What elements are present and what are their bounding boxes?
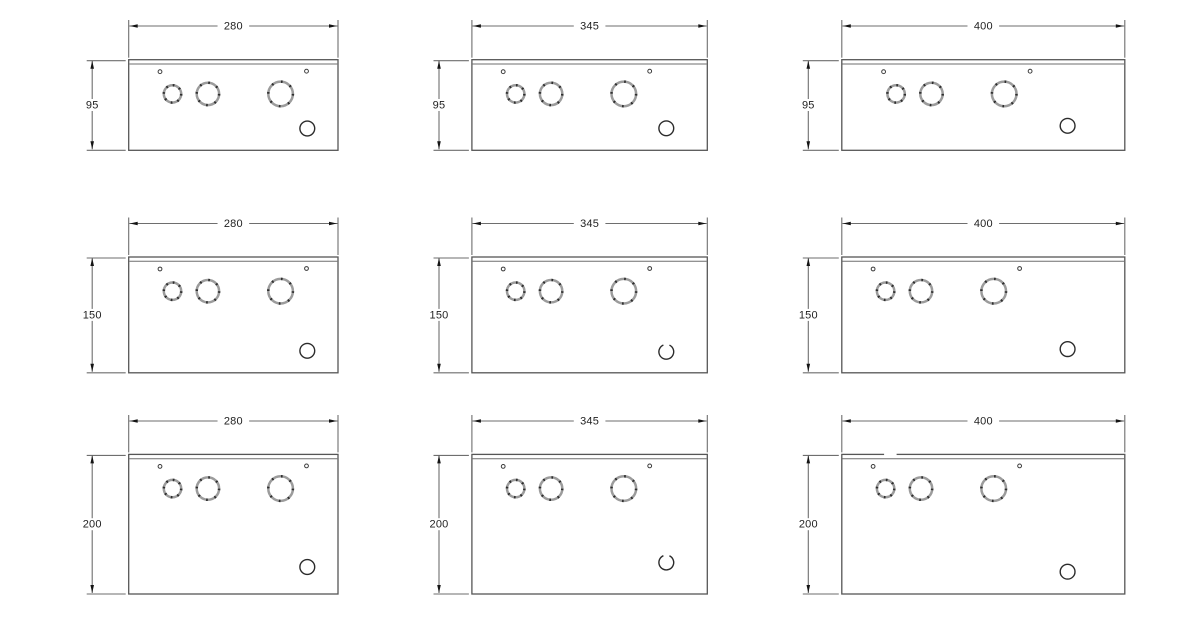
dimension-arrow bbox=[437, 258, 441, 266]
panel-400x150: 400150 bbox=[797, 218, 1125, 373]
width-dimension-label: 280 bbox=[224, 21, 243, 33]
width-dimension-label: 400 bbox=[974, 218, 993, 230]
height-dimension-label: 150 bbox=[83, 309, 102, 321]
height-dimension: 95 bbox=[800, 61, 839, 151]
height-dimension-label: 150 bbox=[430, 309, 449, 321]
width-dimension: 280 bbox=[129, 20, 338, 58]
dimension-arrow bbox=[437, 585, 441, 593]
width-dimension-label: 280 bbox=[224, 218, 243, 230]
width-dimension-label: 345 bbox=[580, 218, 599, 230]
width-dimension: 400 bbox=[842, 415, 1125, 452]
width-dimension-label: 345 bbox=[580, 21, 599, 33]
dimension-arrow bbox=[437, 364, 441, 372]
panel-280x150: 280150 bbox=[81, 218, 338, 373]
height-dimension-label: 95 bbox=[802, 100, 815, 112]
dimension-arrow bbox=[698, 222, 706, 226]
dimension-arrow bbox=[843, 419, 851, 423]
dimension-arrow bbox=[698, 419, 706, 423]
dimension-arrow bbox=[130, 24, 138, 28]
panel-345x200: 345200 bbox=[428, 415, 708, 594]
dimension-arrow bbox=[843, 222, 851, 226]
dimension-arrow bbox=[90, 364, 94, 372]
width-dimension: 345 bbox=[472, 20, 707, 58]
dimension-arrow bbox=[473, 24, 481, 28]
dimension-arrow bbox=[90, 61, 94, 69]
dimension-arrow bbox=[90, 258, 94, 266]
height-dimension: 150 bbox=[797, 258, 839, 373]
dimension-arrow bbox=[473, 419, 481, 423]
dimension-arrow bbox=[807, 364, 811, 372]
dimension-arrow bbox=[90, 141, 94, 149]
height-dimension: 200 bbox=[81, 455, 126, 594]
dimension-arrow bbox=[130, 419, 138, 423]
height-dimension-label: 200 bbox=[799, 519, 818, 531]
width-dimension-label: 280 bbox=[224, 416, 243, 428]
dimension-arrow bbox=[329, 419, 337, 423]
dimension-arrow bbox=[807, 258, 811, 266]
enclosure-body-outline bbox=[472, 454, 707, 594]
enclosure-body-outline bbox=[472, 60, 707, 151]
dimension-arrow bbox=[1116, 222, 1124, 226]
height-dimension: 150 bbox=[81, 258, 126, 373]
width-dimension-label: 345 bbox=[580, 416, 599, 428]
dimension-arrow bbox=[1116, 419, 1124, 423]
width-dimension: 280 bbox=[129, 218, 338, 256]
dimension-arrow bbox=[329, 24, 337, 28]
dimension-arrow bbox=[437, 455, 441, 463]
panel-345x150: 345150 bbox=[428, 218, 708, 373]
dimension-arrow bbox=[807, 455, 811, 463]
dimension-arrow bbox=[329, 222, 337, 226]
dimension-arrow bbox=[843, 24, 851, 28]
height-dimension-label: 95 bbox=[433, 100, 446, 112]
dimension-arrow bbox=[1116, 24, 1124, 28]
dimension-arrow bbox=[807, 141, 811, 149]
enclosure-body-outline bbox=[842, 257, 1125, 373]
width-dimension: 400 bbox=[842, 218, 1125, 256]
height-dimension: 150 bbox=[428, 258, 469, 373]
dimension-arrow bbox=[807, 585, 811, 593]
width-dimension: 345 bbox=[472, 218, 707, 256]
dimension-arrow bbox=[807, 61, 811, 69]
technical-drawing-svg: 2809534595400952801503451504001502802003… bbox=[0, 0, 1200, 633]
panel-400x95: 40095 bbox=[800, 20, 1125, 150]
dimension-arrow bbox=[437, 61, 441, 69]
enclosure-body-outline bbox=[129, 454, 338, 594]
height-dimension-label: 150 bbox=[799, 309, 818, 321]
dimension-arrow bbox=[698, 24, 706, 28]
dimension-arrow bbox=[90, 585, 94, 593]
drawing-canvas: 2809534595400952801503451504001502802003… bbox=[0, 0, 1200, 633]
dimension-arrow bbox=[130, 222, 138, 226]
width-dimension: 400 bbox=[842, 20, 1125, 58]
height-dimension-label: 95 bbox=[86, 100, 99, 112]
height-dimension: 95 bbox=[431, 61, 469, 151]
height-dimension: 200 bbox=[797, 455, 839, 594]
enclosure-body-outline bbox=[842, 454, 1125, 594]
panel-345x95: 34595 bbox=[431, 20, 708, 150]
width-dimension: 345 bbox=[472, 415, 707, 452]
panel-280x95: 28095 bbox=[84, 20, 338, 150]
width-dimension: 280 bbox=[129, 415, 338, 452]
height-dimension-label: 200 bbox=[83, 519, 102, 531]
height-dimension: 95 bbox=[84, 61, 126, 151]
width-dimension-label: 400 bbox=[974, 21, 993, 33]
height-dimension: 200 bbox=[428, 455, 469, 594]
top-edge-gap bbox=[884, 453, 897, 455]
dimension-arrow bbox=[90, 455, 94, 463]
height-dimension-label: 200 bbox=[430, 519, 449, 531]
dimension-arrow bbox=[437, 141, 441, 149]
panel-400x200: 400200 bbox=[797, 415, 1125, 594]
dimension-arrow bbox=[473, 222, 481, 226]
enclosure-body-outline bbox=[129, 257, 338, 373]
panel-280x200: 280200 bbox=[81, 415, 338, 594]
width-dimension-label: 400 bbox=[974, 416, 993, 428]
